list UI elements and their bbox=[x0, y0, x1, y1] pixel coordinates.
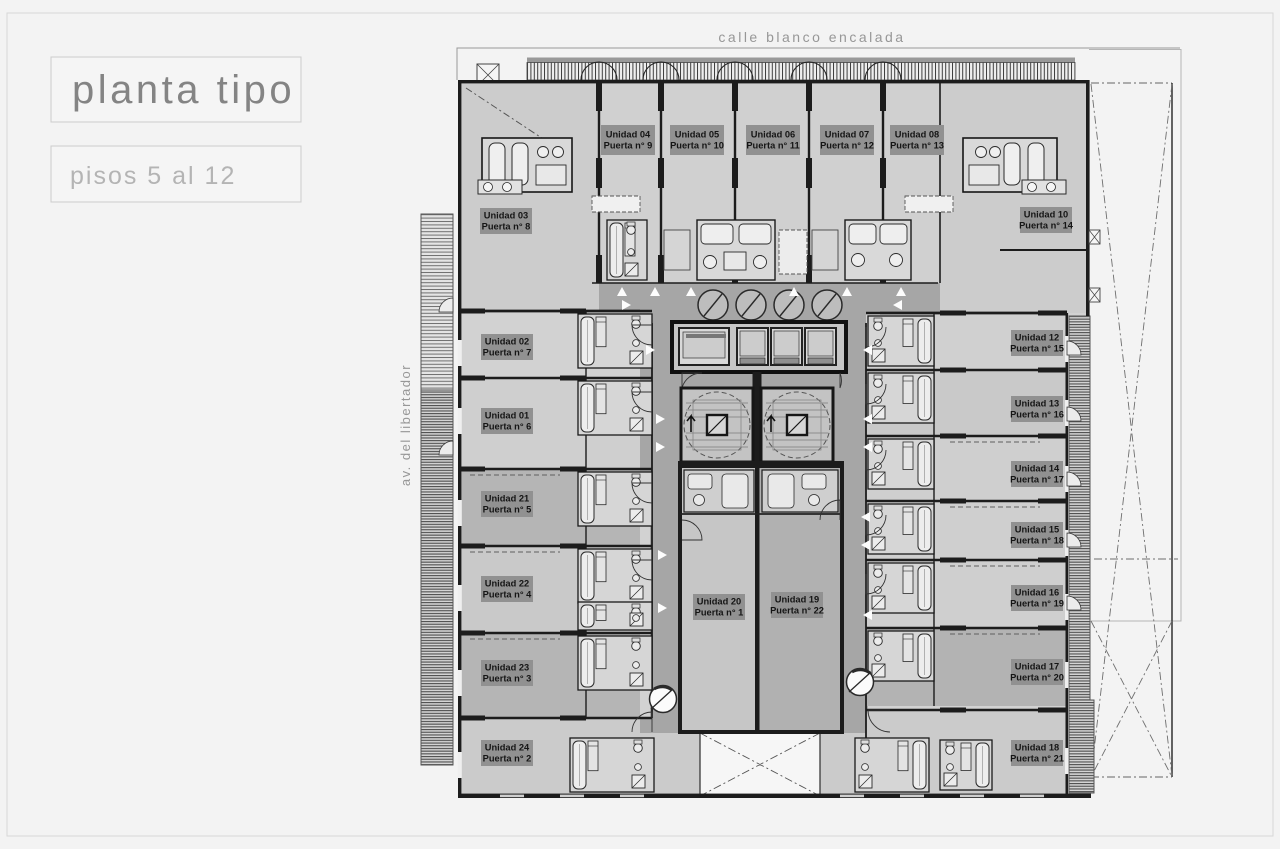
svg-text:Unidad 23: Unidad 23 bbox=[485, 663, 529, 673]
svg-text:Unidad 16: Unidad 16 bbox=[1015, 588, 1059, 598]
svg-text:Puerta n° 17: Puerta n° 17 bbox=[1010, 475, 1064, 485]
svg-text:Unidad 10: Unidad 10 bbox=[1024, 210, 1068, 220]
svg-text:Unidad 04: Unidad 04 bbox=[606, 130, 651, 140]
svg-text:Puerta n° 20: Puerta n° 20 bbox=[1010, 673, 1064, 683]
svg-text:Unidad 03: Unidad 03 bbox=[484, 211, 528, 221]
svg-text:Puerta n° 16: Puerta n° 16 bbox=[1010, 410, 1064, 420]
svg-text:Puerta n° 2: Puerta n° 2 bbox=[483, 754, 532, 764]
svg-text:Unidad 15: Unidad 15 bbox=[1015, 525, 1059, 535]
svg-text:planta tipo: planta tipo bbox=[72, 68, 295, 112]
svg-text:Puerta n° 10: Puerta n° 10 bbox=[670, 141, 724, 151]
svg-text:Puerta n° 1: Puerta n° 1 bbox=[695, 608, 744, 618]
svg-text:Puerta n° 15: Puerta n° 15 bbox=[1010, 344, 1064, 354]
svg-text:Puerta n° 14: Puerta n° 14 bbox=[1019, 221, 1074, 231]
svg-text:Unidad 24: Unidad 24 bbox=[485, 743, 530, 753]
svg-text:Unidad 06: Unidad 06 bbox=[751, 130, 795, 140]
svg-text:Unidad 01: Unidad 01 bbox=[485, 411, 529, 421]
svg-text:Puerta n° 9: Puerta n° 9 bbox=[604, 141, 653, 151]
svg-text:Puerta n° 3: Puerta n° 3 bbox=[483, 674, 532, 684]
svg-text:Unidad 08: Unidad 08 bbox=[895, 130, 939, 140]
svg-text:Unidad 22: Unidad 22 bbox=[485, 579, 529, 589]
svg-text:Unidad 02: Unidad 02 bbox=[485, 337, 529, 347]
svg-text:Puerta n° 12: Puerta n° 12 bbox=[820, 141, 874, 151]
svg-text:Unidad 19: Unidad 19 bbox=[775, 595, 819, 605]
svg-text:Unidad 18: Unidad 18 bbox=[1015, 743, 1059, 753]
svg-text:Unidad 13: Unidad 13 bbox=[1015, 399, 1059, 409]
svg-text:Puerta n° 11: Puerta n° 11 bbox=[746, 141, 799, 151]
svg-text:calle blanco encalada: calle blanco encalada bbox=[718, 29, 905, 45]
svg-text:Puerta n° 19: Puerta n° 19 bbox=[1010, 599, 1064, 609]
svg-text:Unidad 17: Unidad 17 bbox=[1015, 662, 1059, 672]
svg-text:Unidad 14: Unidad 14 bbox=[1015, 464, 1060, 474]
svg-text:Puerta n° 13: Puerta n° 13 bbox=[890, 141, 944, 151]
svg-text:Puerta n° 22: Puerta n° 22 bbox=[770, 606, 824, 616]
svg-text:Puerta n° 7: Puerta n° 7 bbox=[483, 348, 532, 358]
svg-text:pisos 5 al 12: pisos 5 al 12 bbox=[70, 162, 236, 190]
svg-text:Unidad 07: Unidad 07 bbox=[825, 130, 869, 140]
svg-text:Unidad 12: Unidad 12 bbox=[1015, 333, 1059, 343]
svg-text:Puerta n° 5: Puerta n° 5 bbox=[483, 505, 532, 515]
svg-text:Unidad 21: Unidad 21 bbox=[485, 494, 529, 504]
svg-text:Unidad 05: Unidad 05 bbox=[675, 130, 719, 140]
svg-text:Puerta n° 18: Puerta n° 18 bbox=[1010, 536, 1064, 546]
svg-text:av. del libertador: av. del libertador bbox=[398, 364, 413, 486]
svg-text:Puerta n° 21: Puerta n° 21 bbox=[1010, 754, 1064, 764]
svg-text:Puerta n° 4: Puerta n° 4 bbox=[483, 590, 532, 600]
svg-text:Puerta n° 6: Puerta n° 6 bbox=[483, 422, 532, 432]
svg-text:Puerta n° 8: Puerta n° 8 bbox=[482, 222, 531, 232]
svg-text:Unidad 20: Unidad 20 bbox=[697, 597, 741, 607]
